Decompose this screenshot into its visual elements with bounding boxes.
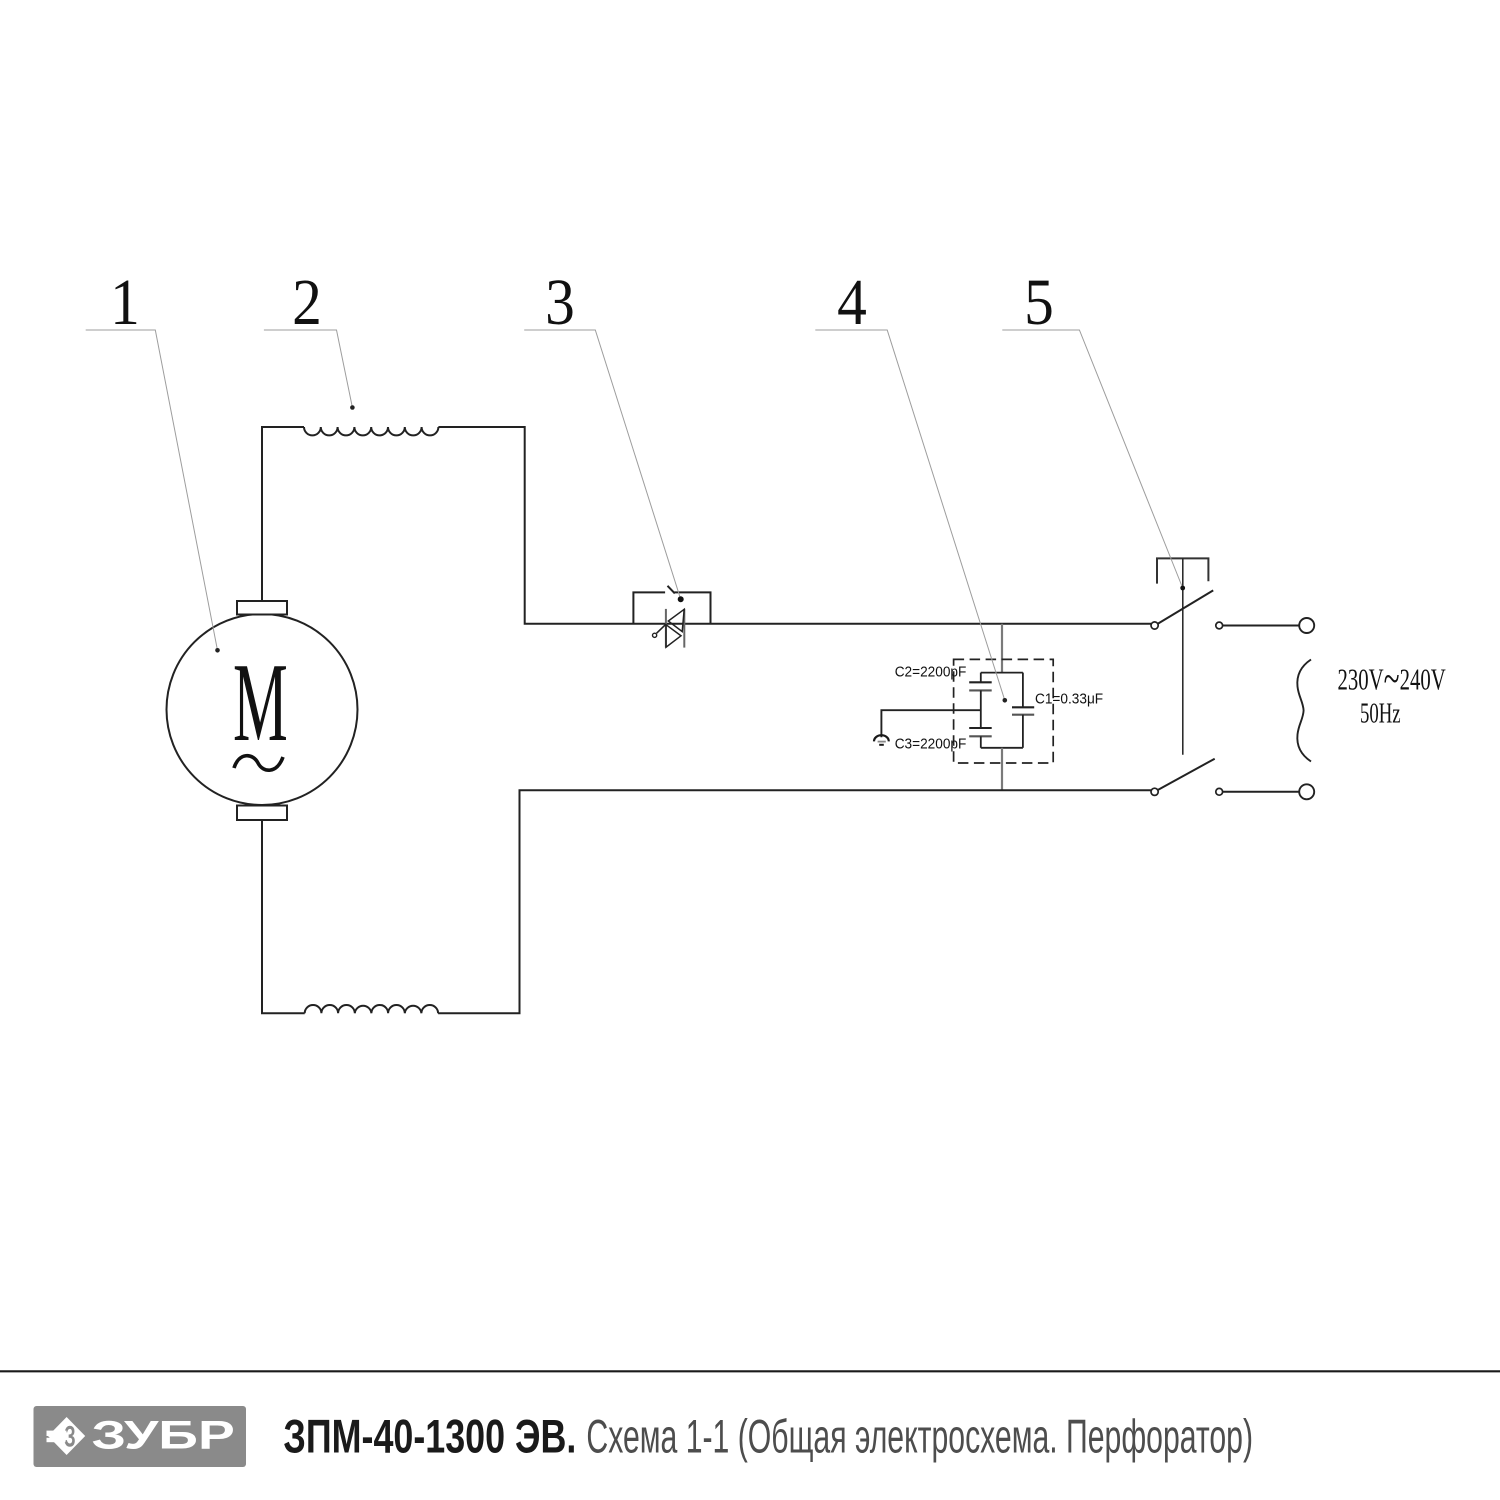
svg-text:4: 4 [837,265,867,339]
svg-text:50Hz: 50Hz [1360,699,1401,730]
svg-text:1: 1 [110,265,140,339]
svg-text:З: З [64,1420,76,1454]
svg-text:Схема 1-1 (Общая электросхема.: Схема 1-1 (Общая электросхема. Перфорато… [586,1411,1253,1463]
svg-text:3: 3 [545,265,575,339]
svg-text:C3=2200pF: C3=2200pF [895,736,967,753]
svg-text:C1=0.33μF: C1=0.33μF [1035,691,1103,708]
svg-text:ЗУБР: ЗУБР [92,1413,235,1458]
svg-text:2: 2 [292,265,322,339]
svg-text:C2=2200pF: C2=2200pF [895,664,967,681]
svg-text:5: 5 [1024,265,1054,339]
svg-text:ЗПМ-40-1300 ЭВ.: ЗПМ-40-1300 ЭВ. [283,1410,576,1463]
svg-text:M: M [233,640,288,765]
